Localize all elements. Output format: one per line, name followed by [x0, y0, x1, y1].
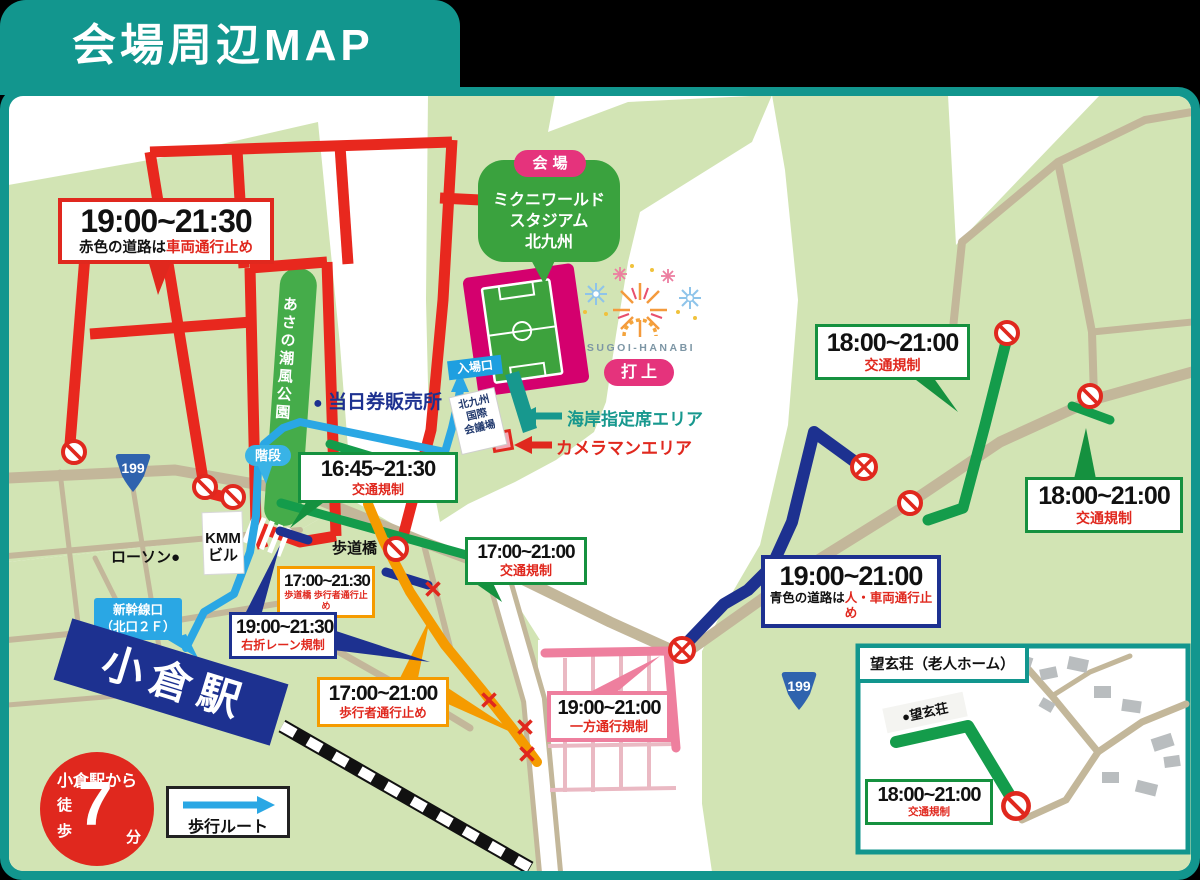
- restriction-1645: 16:45~21:30 交通規制: [298, 452, 458, 503]
- restriction-text: 人・車両通行止め: [845, 591, 933, 620]
- walk-route-arrow-icon: [179, 795, 297, 815]
- event-map-page: 会場周辺MAP ミクニワールド スタジアム 北九州 会場 入場口 SUGOI-H…: [0, 0, 1200, 880]
- stairs-badge: 階段: [245, 445, 291, 466]
- restriction-time: 19:00~21:30: [236, 617, 330, 638]
- restriction-pedestrian: 17:00~21:00 歩行者通行止め: [317, 677, 449, 727]
- kmm-label: KMM ビル: [197, 530, 249, 564]
- launch-badge: 打上: [604, 359, 674, 386]
- restriction-time: 16:45~21:30: [305, 457, 451, 482]
- restriction-text: 歩行者通行止め: [324, 706, 442, 721]
- restriction-time: 17:00~21:30: [284, 571, 368, 590]
- inset-title: 望玄荘（老人ホーム）: [856, 644, 1029, 683]
- restriction-text: 交通規制: [472, 563, 580, 579]
- seaside-area-label: 海岸指定席エリア: [567, 405, 703, 430]
- restriction-18-top: 18:00~21:00 交通規制: [815, 324, 970, 380]
- route-199-label: 199: [782, 676, 816, 696]
- lawson-label: ローソン●: [111, 546, 180, 567]
- ticket-office-text: 当日券販売所: [328, 392, 442, 413]
- venue-name-line2: スタジアム: [478, 211, 620, 232]
- restriction-time: 18:00~21:00: [1032, 482, 1176, 510]
- ticket-dot-icon: ●: [313, 395, 323, 412]
- restriction-text: 交通規制: [822, 357, 963, 374]
- walk-kanji-1: 徒: [57, 794, 72, 815]
- walk-route-label: 歩行ルート: [169, 813, 287, 837]
- restriction-text: 車両通行止め: [166, 240, 253, 256]
- walk-time-badge: 小倉駅から 徒 歩 7 分: [40, 752, 154, 866]
- restriction-prefix: 赤色の道路は: [79, 240, 166, 256]
- walk-unit: 分: [126, 826, 141, 847]
- footbridge-label: 歩道橋: [332, 537, 377, 558]
- page-title: 会場周辺MAP: [72, 0, 374, 92]
- walk-kanji-2: 歩: [57, 820, 72, 841]
- kmm-line2: ビル: [197, 547, 249, 564]
- restriction-text: 右折レーン規制: [236, 638, 330, 652]
- restriction-time: 18:00~21:00: [822, 329, 963, 357]
- restriction-text: 交通規制: [1032, 510, 1176, 527]
- restriction-1700: 17:00~21:00 交通規制: [465, 537, 587, 585]
- restriction-bridge-closed: 17:00~21:30 歩道橋 歩行者通行止め: [277, 566, 375, 618]
- walk-route-legend: 歩行ルート: [166, 786, 290, 838]
- restriction-right-turn: 19:00~21:30 右折レーン規制: [229, 612, 337, 659]
- restriction-red-road: 19:00~21:30 赤色の道路は車両通行止め: [58, 198, 274, 264]
- restriction-time: 19:00~21:30: [66, 204, 266, 240]
- restriction-text: 交通規制: [305, 482, 451, 498]
- restriction-blue-road: 19:00~21:00 青色の道路は人・車両通行止め: [761, 555, 941, 628]
- cameraman-area-label: カメラマンエリア: [556, 434, 692, 459]
- restriction-18-right: 18:00~21:00 交通規制: [1025, 477, 1183, 533]
- hanabi-label: SUGOI-HANABI: [578, 342, 704, 354]
- restriction-time: 17:00~21:00: [472, 542, 580, 563]
- stadium: [462, 263, 590, 397]
- restriction-time: 17:00~21:00: [324, 682, 442, 706]
- restriction-text: 歩道橋 歩行者通行止め: [284, 590, 368, 612]
- walk-minutes: 7: [78, 774, 112, 836]
- restriction-one-way: 19:00~21:00 一方通行規制: [547, 691, 671, 742]
- shinkansen-line1: 新幹線口: [94, 602, 182, 619]
- restriction-text: 一方通行規制: [555, 719, 663, 735]
- ticket-office-label: ● 当日券販売所: [313, 387, 442, 414]
- route-199-label: 199: [116, 458, 150, 478]
- venue-name-line3: 北九州: [478, 232, 620, 253]
- restriction-prefix: 青色の道路は: [770, 591, 845, 605]
- restriction-time: 19:00~21:00: [555, 697, 663, 719]
- page-header: 会場周辺MAP: [0, 0, 460, 95]
- kmm-line1: KMM: [197, 530, 249, 547]
- restriction-time: 19:00~21:00: [769, 561, 933, 591]
- venue-name-line1: ミクニワールド: [478, 190, 620, 211]
- restriction-text: 交通規制: [872, 806, 986, 819]
- restriction-18-inset: 18:00~21:00 交通規制: [865, 779, 993, 825]
- venue-badge: 会場: [514, 150, 586, 177]
- restriction-time: 18:00~21:00: [872, 784, 986, 806]
